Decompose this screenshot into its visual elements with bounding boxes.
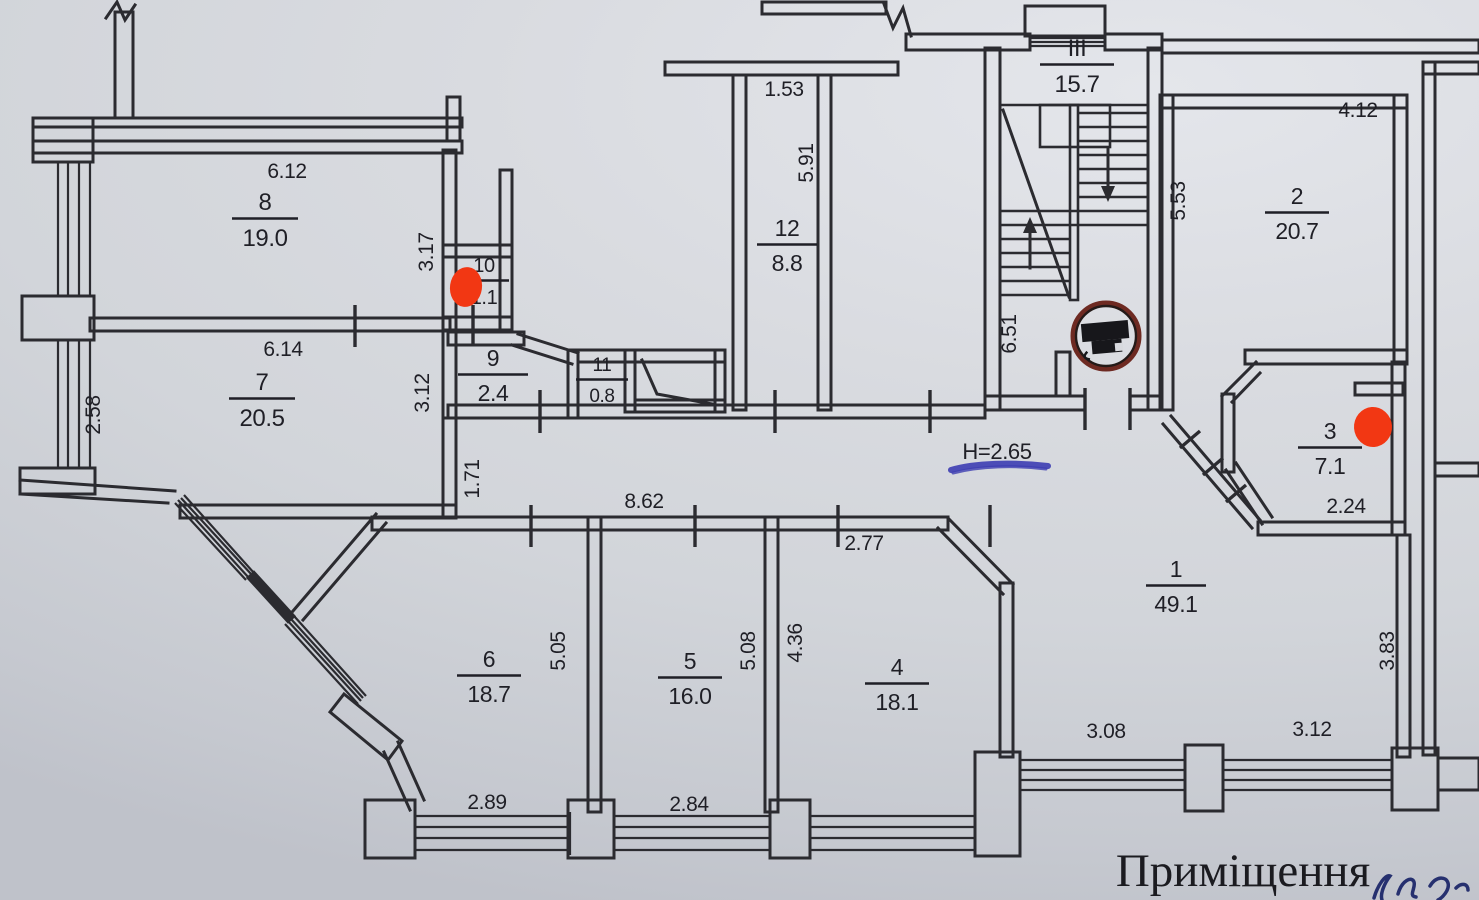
- room-label-3: 37.1: [1298, 418, 1362, 479]
- stairs: [1000, 105, 1148, 300]
- dimension-label: 2.84: [669, 793, 709, 816]
- scanned-floor-plan: 819.0720.5101.192.4110.8128.8III15.7220.…: [0, 0, 1479, 900]
- dimension-label: 2.89: [467, 791, 506, 814]
- dimension-label: 5.91: [795, 143, 818, 182]
- room-area: 15.7: [1054, 71, 1099, 98]
- dimension-label: 3.12: [1292, 718, 1331, 741]
- red-marker-room3: [1353, 406, 1394, 449]
- room-area: 20.7: [1275, 218, 1318, 244]
- dimension-label: 3.08: [1086, 720, 1125, 743]
- room-area: 8.8: [772, 250, 803, 276]
- dimension-label: 5.05: [547, 631, 570, 670]
- dimension-label: 1.71: [461, 459, 484, 498]
- dimension-label: 2.58: [82, 395, 105, 434]
- room-number: 9: [487, 345, 499, 371]
- dimension-label: 2.24: [1326, 495, 1366, 518]
- room-number: 5: [684, 648, 696, 674]
- dimension-label: 4.36: [784, 623, 807, 662]
- dimension-label: 5.08: [737, 631, 760, 670]
- room-label-6: 618.7: [457, 646, 521, 707]
- room-label-1: 149.1: [1146, 556, 1206, 617]
- stair-break-line: [1003, 110, 1069, 297]
- room-area: 16.0: [668, 683, 711, 709]
- dimension-label: 3.12: [411, 373, 434, 412]
- ink-underline: [951, 464, 1048, 473]
- handwriting-marks: [1374, 876, 1468, 900]
- room-number: 3: [1324, 418, 1336, 444]
- dimension-label: 5.53: [1167, 181, 1190, 220]
- room-label-III: III15.7: [1040, 35, 1114, 98]
- room-area: 18.1: [875, 689, 918, 715]
- dimension-label: 3.83: [1376, 631, 1399, 670]
- windows: [58, 38, 1392, 855]
- room-area: 19.0: [242, 225, 287, 252]
- room-number: III: [1068, 35, 1087, 62]
- room-number: 11: [593, 355, 612, 376]
- room-area: 18.7: [467, 681, 510, 707]
- wall-break-mark: [106, 2, 135, 20]
- room-number: 8: [259, 189, 272, 216]
- dimension-label: 6.51: [998, 314, 1021, 353]
- room-labels: 819.0720.5101.192.4110.8128.8III15.7220.…: [229, 35, 1362, 715]
- dimension-label: 6.12: [267, 160, 306, 183]
- room-number: 2: [1291, 183, 1303, 209]
- dimension-label: 3.17: [415, 232, 438, 271]
- dimension-label: 2.77: [844, 532, 883, 555]
- room-label-12: 128.8: [757, 215, 817, 276]
- room-area: 20.5: [239, 405, 284, 432]
- room-label-5: 516.0: [658, 648, 722, 709]
- room-number: 1: [1170, 556, 1182, 582]
- dimension-label: 8.62: [624, 490, 663, 513]
- wall-break-mark: [884, 4, 911, 36]
- room-number: 6: [483, 646, 495, 672]
- room-label-7: 720.5: [229, 369, 295, 432]
- room-area: 0.8: [589, 386, 614, 407]
- sloped-element: [642, 360, 712, 404]
- caption: Приміщення: [1116, 845, 1370, 897]
- room-area: 49.1: [1154, 591, 1197, 617]
- ceiling-height-note: H=2.65: [962, 439, 1031, 464]
- room-label-8: 819.0: [232, 189, 298, 252]
- chute-symbol-icon: [1073, 303, 1139, 369]
- room-number: 12: [775, 215, 800, 241]
- room-number: 7: [256, 369, 269, 396]
- hatched-partition: [1163, 416, 1260, 528]
- room-label-4: 418.1: [865, 654, 929, 715]
- dimension-labels: 6.123.176.142.583.121.711.535.915.536.51…: [82, 78, 1399, 816]
- bay-corner-pier: [330, 694, 402, 760]
- room-area: 2.4: [478, 380, 509, 406]
- room-area: 7.1: [1315, 453, 1346, 479]
- dimension-label: 6.14: [263, 338, 303, 361]
- room-number: 4: [891, 654, 904, 680]
- dimension-label: 1.53: [764, 78, 803, 101]
- room-label-2: 220.7: [1265, 183, 1329, 244]
- dimension-label: 4.12: [1338, 99, 1377, 122]
- room-label-9: 92.4: [458, 345, 528, 406]
- bay-solid-segment: [250, 574, 292, 620]
- floor-plan-drawing: 819.0720.5101.192.4110.8128.8III15.7220.…: [0, 0, 1479, 900]
